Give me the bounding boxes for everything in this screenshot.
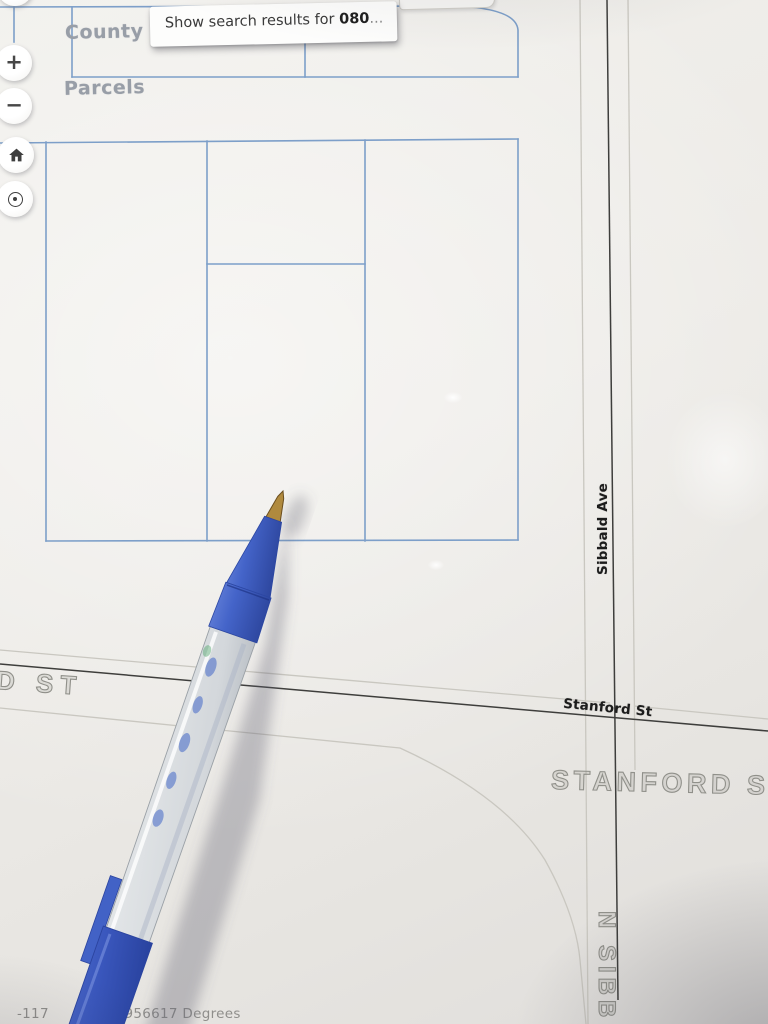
street-label-sibbald: Sibbald Ave — [595, 469, 611, 589]
street-label-stanford-basemap: STANFORD ST — [551, 765, 768, 802]
locate-icon — [8, 192, 23, 207]
tooltip-text: Show search results for — [165, 12, 340, 32]
pen-shadow — [144, 492, 313, 1024]
pen-nose-cone — [227, 516, 282, 597]
home-extent-button[interactable] — [0, 137, 34, 173]
map-viewport[interactable]: D ST STANFORD ST N SIBB Stanford St Sibb… — [0, 0, 768, 1024]
tooltip-query: 080 — [339, 11, 370, 28]
coordinate-readout-right: 0.956617 Degrees — [111, 1006, 241, 1022]
ballpoint-pen — [0, 0, 768, 1024]
glare-speck — [428, 560, 444, 570]
street-centerlines — [0, 0, 768, 1000]
partial-button — [0, 0, 33, 6]
photo-vignette — [0, 0, 768, 1024]
pen-collar — [209, 582, 271, 643]
pen-print-marks — [150, 656, 218, 828]
zoom-in-button[interactable]: + — [0, 45, 32, 81]
street-label-n-sibbald-basemap: N SIBB — [592, 911, 620, 1024]
street-label-stanford: Stanford St — [562, 696, 653, 721]
coordinate-readout-left: -117 — [17, 1006, 49, 1022]
home-icon — [8, 147, 25, 163]
glare-spot — [660, 385, 768, 535]
pen-brass-tip — [266, 491, 284, 522]
map-canvas — [0, 0, 768, 1024]
minus-icon: − — [5, 95, 23, 116]
plus-icon: + — [5, 52, 23, 73]
layer-label-county: County — [65, 20, 144, 44]
locate-me-button[interactable] — [0, 181, 33, 217]
pen-cap-clip — [81, 876, 122, 965]
popup-stub — [399, 0, 496, 10]
layer-label-parcels: Parcels — [64, 76, 146, 100]
tooltip-ellipsis: ... — [369, 11, 383, 27]
search-suggestion-tooltip[interactable]: Show search results for 080... — [150, 1, 398, 47]
glare-speck — [444, 392, 462, 403]
basemap-road-lines — [0, 0, 768, 1024]
pen-barrel — [89, 627, 256, 994]
zoom-out-button[interactable]: − — [0, 88, 32, 124]
street-label-d-st: D ST — [0, 665, 84, 702]
